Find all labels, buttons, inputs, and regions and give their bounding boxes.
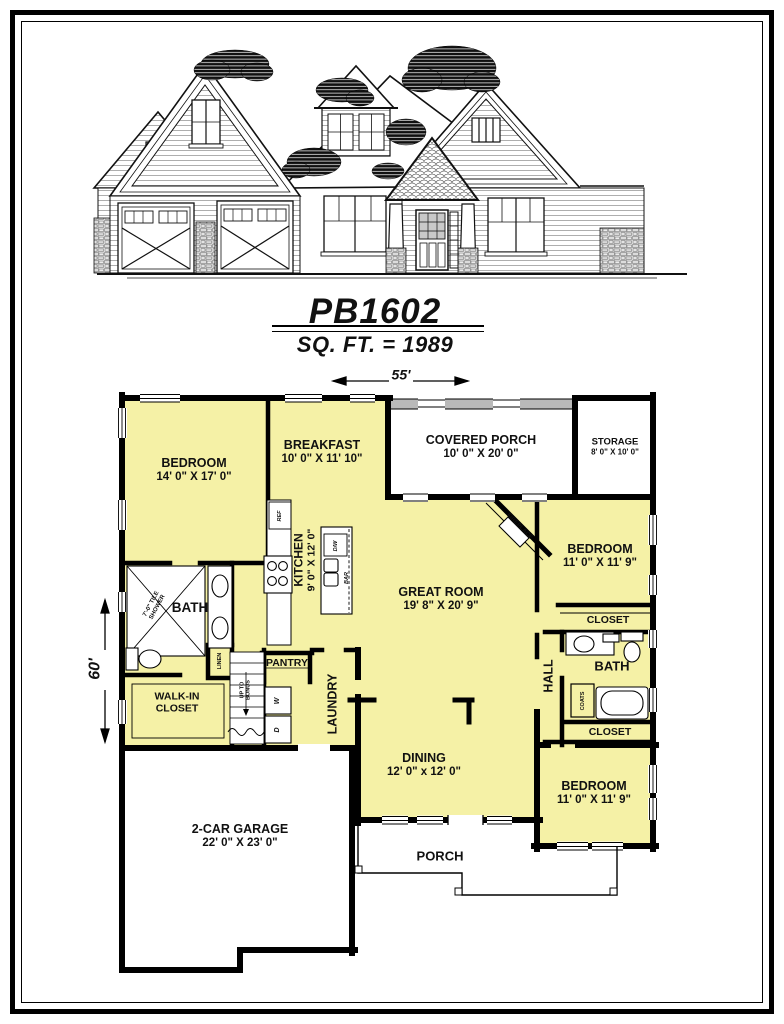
room-label-hall: HALL	[542, 659, 557, 692]
room-label-dining: DINING 12' 0" x 12' 0"	[387, 751, 461, 779]
room-label-bedroom-master: BEDROOM 14' 0" X 17' 0"	[156, 456, 231, 484]
room-label-pantry: PANTRY	[266, 657, 308, 669]
house-plan-sheet: PB1602 SQ. FT. = 1989	[0, 0, 784, 1024]
room-label-great-room: GREAT ROOM 19' 8" X 20' 9"	[398, 585, 483, 613]
label-linen: LINEN	[217, 653, 223, 670]
floor-plan-drawing	[0, 0, 784, 1024]
room-label-closet-lower: CLOSET	[589, 726, 632, 738]
label-washer: W	[274, 698, 282, 705]
label-dryer: D	[274, 727, 282, 732]
room-label-bath-right: BATH	[594, 658, 629, 673]
room-label-breakfast: BREAKFAST 10' 0" X 11' 10"	[282, 438, 363, 466]
room-label-kitchen: KITCHEN 9' 0" X 12' 0"	[292, 529, 319, 592]
room-label-storage: STORAGE 8' 0" X 10' 0"	[591, 437, 639, 458]
dim-width-label: 55'	[392, 367, 411, 384]
porch-screen-band	[388, 399, 575, 409]
room-label-bedroom-2: BEDROOM 11' 0" X 11' 9"	[563, 542, 637, 570]
label-refrigerator: REF	[277, 511, 283, 522]
label-coats: COATS	[580, 692, 586, 711]
room-label-closet-upper: CLOSET	[587, 614, 630, 626]
double-vanity	[208, 566, 232, 648]
room-label-porch: PORCH	[417, 848, 464, 863]
label-bar: BAR	[344, 572, 350, 584]
label-stairs-up-to-bonus: UP TO BONUS	[240, 680, 253, 700]
room-label-covered-porch: COVERED PORCH 10' 0" X 20' 0"	[426, 433, 536, 461]
toilet-left	[126, 648, 161, 670]
room-label-bath-left: BATH	[172, 600, 209, 616]
label-dishwasher: D/W	[333, 541, 339, 552]
room-label-bedroom-3: BEDROOM 11' 0" X 11' 9"	[557, 779, 631, 807]
kitchen-casework	[264, 500, 292, 645]
room-label-laundry: LAUNDRY	[326, 674, 341, 735]
room-label-garage: 2-CAR GARAGE 22' 0" X 23' 0"	[192, 822, 289, 850]
room-label-walk-in-closet: WALK-IN CLOSET	[155, 691, 200, 716]
dim-depth-label: 60'	[87, 658, 106, 680]
